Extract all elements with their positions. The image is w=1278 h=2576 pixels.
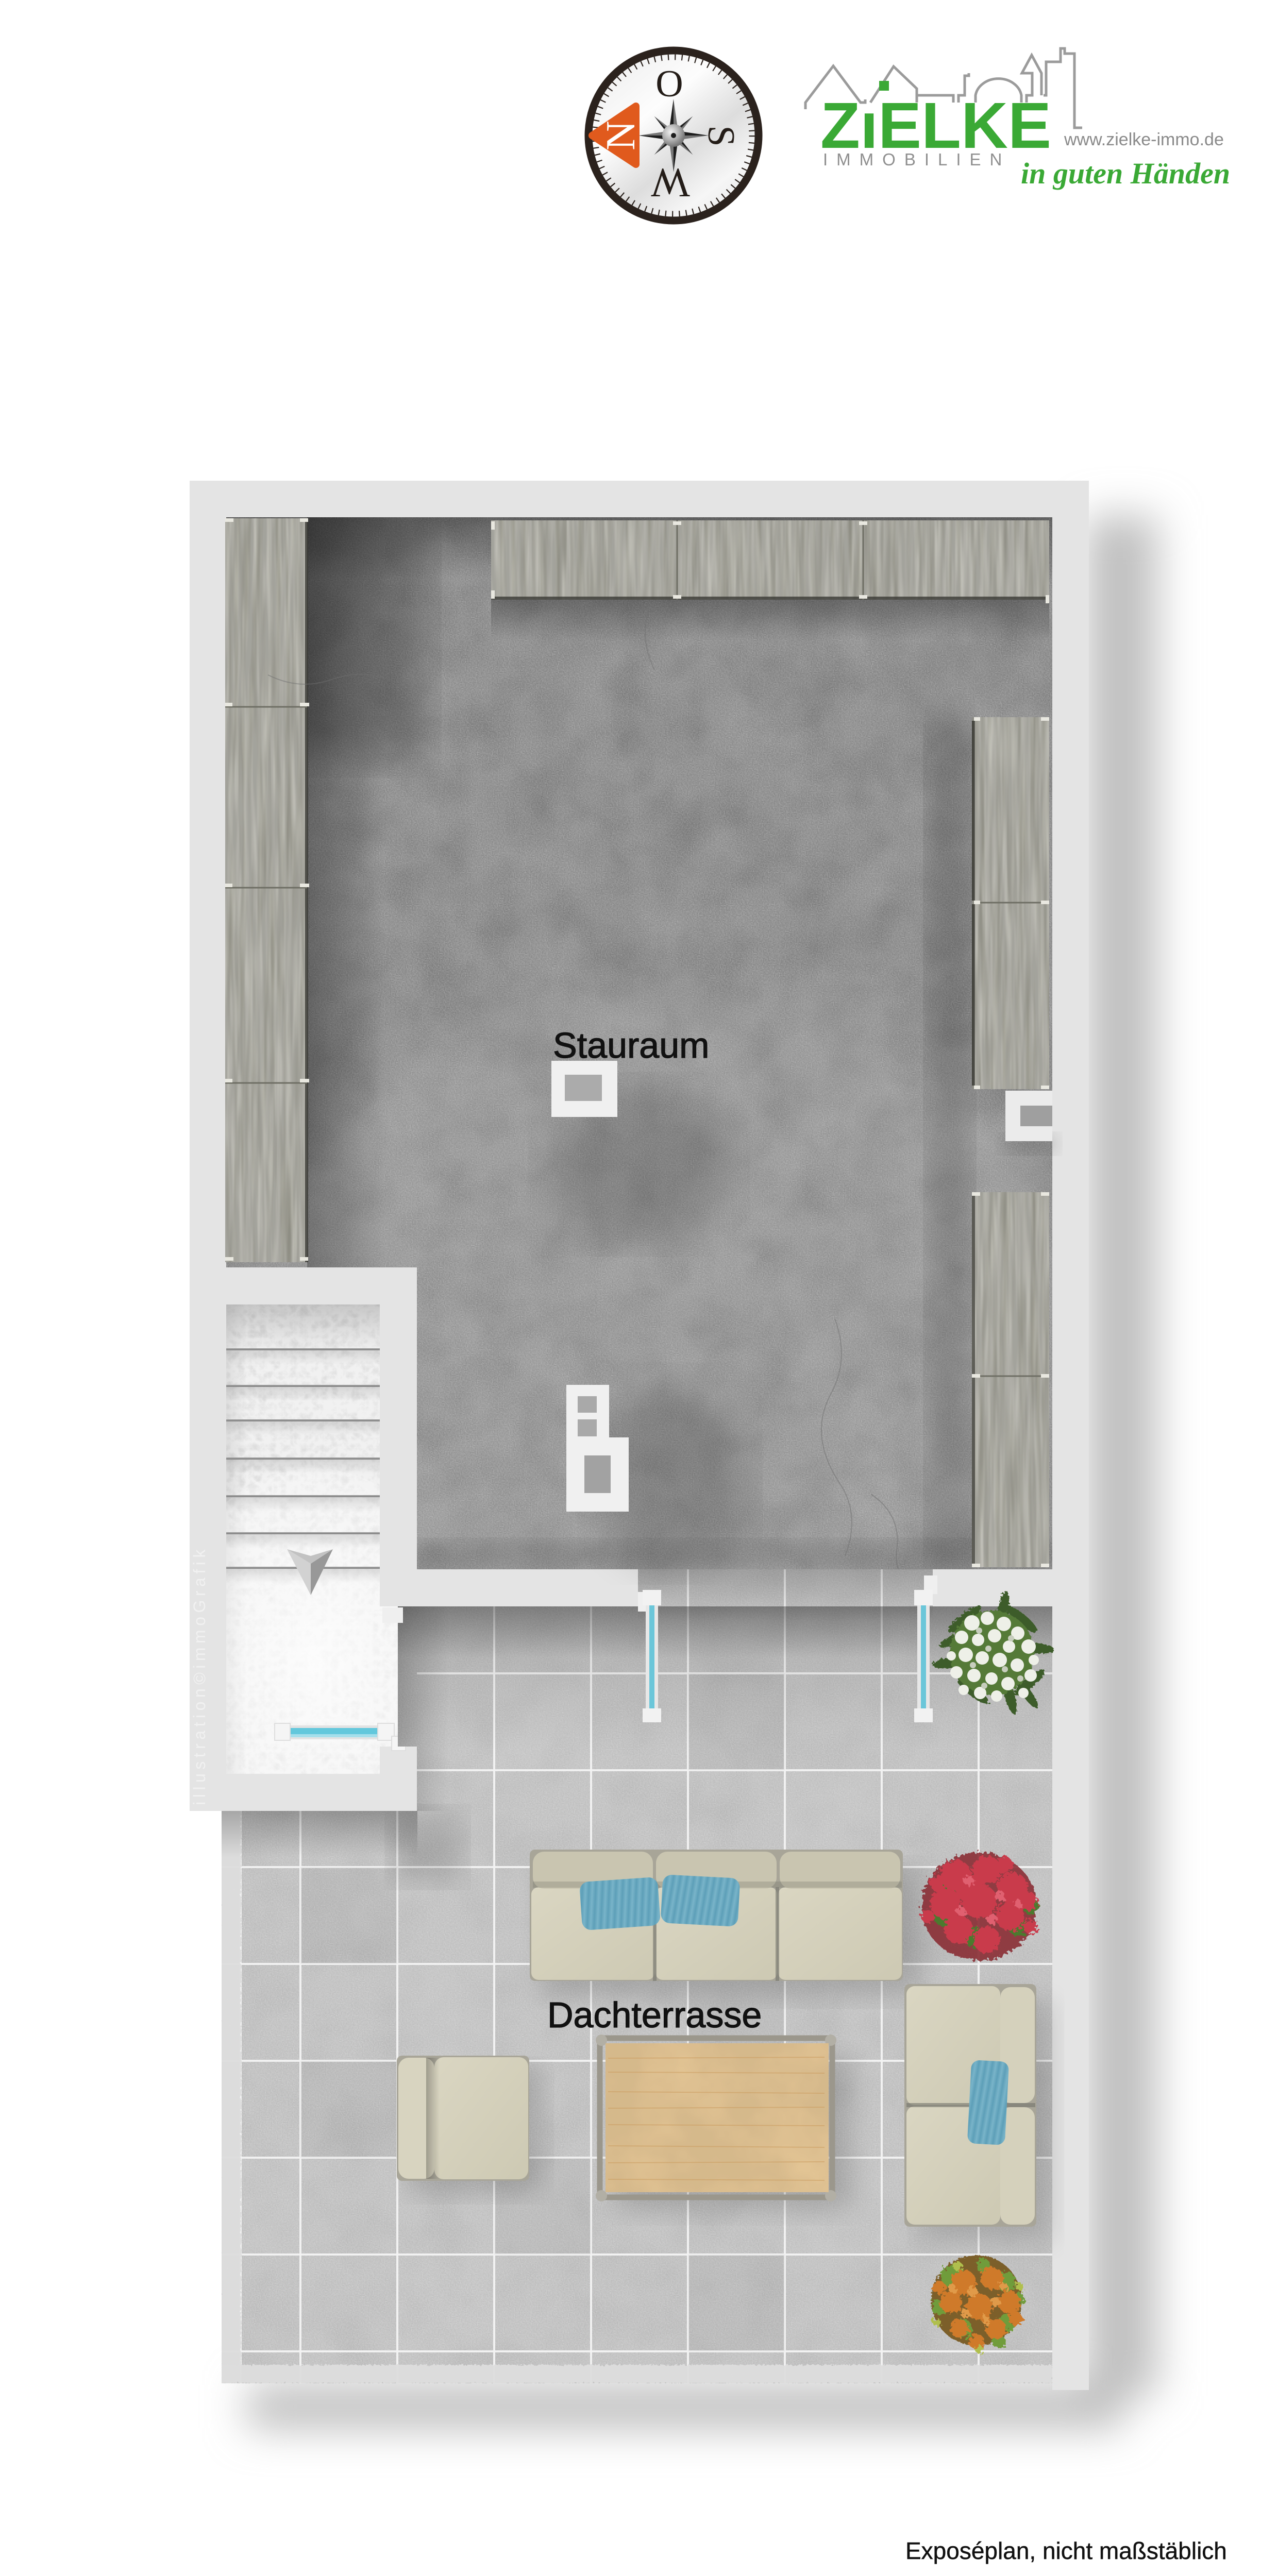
svg-text:www.zielke-immo.de: www.zielke-immo.de — [1064, 130, 1224, 149]
svg-text:S: S — [700, 125, 742, 146]
svg-text:IMMOBILIEN: IMMOBILIEN — [823, 150, 1011, 169]
svg-text:in guten Händen: in guten Händen — [1021, 157, 1230, 190]
svg-text:Dachterrasse: Dachterrasse — [547, 1995, 762, 2035]
svg-text:Exposéplan, nicht maßstäblich: Exposéplan, nicht maßstäblich — [905, 2537, 1227, 2564]
svg-text:O: O — [655, 63, 683, 105]
svg-text:Stauraum: Stauraum — [553, 1025, 709, 1065]
svg-text:N: N — [598, 121, 644, 150]
svg-text:illustration©immoGrafik: illustration©immoGrafik — [190, 1546, 209, 1805]
svg-text:W: W — [651, 160, 690, 205]
